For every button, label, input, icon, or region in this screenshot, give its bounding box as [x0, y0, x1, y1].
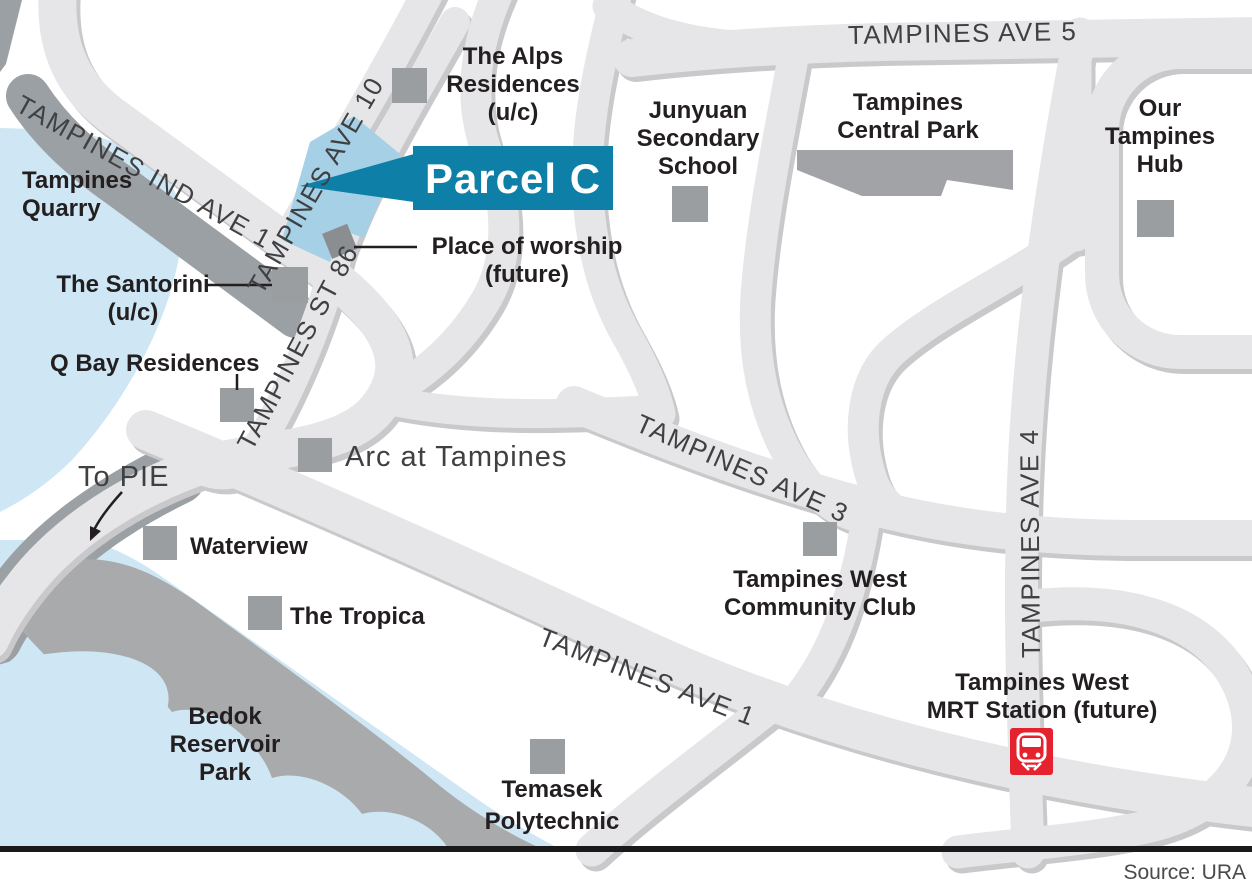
label-q-bay-residences: Q Bay Residences — [50, 350, 259, 377]
parcel-c-callout-label: Parcel C — [425, 155, 601, 202]
svg-text:(u/c): (u/c) — [488, 99, 539, 126]
marker-the-tropica — [248, 596, 282, 630]
svg-text:Central Park: Central Park — [837, 117, 979, 144]
marker-junyuan-secondary-school — [672, 186, 708, 222]
svg-text:Tampines: Tampines — [1105, 123, 1215, 150]
svg-text:Tampines: Tampines — [22, 167, 132, 194]
tampines-parcel-c-map: Parcel C TAMPINES AVE 5 TAMPINES IND AVE… — [0, 0, 1252, 886]
svg-text:Junyuan: Junyuan — [649, 97, 748, 124]
label-to-pie: To PIE — [78, 461, 169, 493]
svg-text:Place of worship: Place of worship — [432, 233, 623, 260]
svg-text:Secondary: Secondary — [637, 125, 760, 152]
road-label-tampines-ave-5: TAMPINES AVE 5 — [848, 16, 1078, 50]
svg-text:Our: Our — [1139, 95, 1182, 122]
marker-our-tampines-hub — [1137, 200, 1174, 237]
svg-text:Reservoir: Reservoir — [170, 731, 281, 758]
svg-text:Community Club: Community Club — [724, 594, 916, 621]
marker-the-alps-residences — [392, 68, 427, 103]
label-tampines-west-mrt-station: Tampines West MRT Station (future) — [927, 669, 1158, 724]
label-the-tropica: The Tropica — [290, 603, 425, 630]
marker-waterview — [143, 526, 177, 560]
svg-text:Tampines: Tampines — [853, 89, 963, 116]
label-arc-at-tampines: Arc at Tampines — [345, 441, 567, 473]
svg-text:(future): (future) — [485, 261, 569, 288]
bottom-rule — [0, 846, 1252, 852]
svg-text:Hub: Hub — [1137, 151, 1184, 178]
label-waterview: Waterview — [190, 533, 308, 560]
mrt-station-icon — [1010, 728, 1053, 775]
label-tampines-west-community-club: Tampines West Community Club — [724, 566, 916, 621]
marker-temasek-polytechnic — [530, 739, 565, 774]
svg-text:MRT Station (future): MRT Station (future) — [927, 697, 1158, 724]
svg-text:Polytechnic: Polytechnic — [485, 808, 620, 835]
svg-text:Bedok: Bedok — [188, 703, 262, 730]
svg-text:Tampines West: Tampines West — [733, 566, 907, 593]
svg-text:School: School — [658, 153, 738, 180]
svg-text:Temasek: Temasek — [502, 776, 604, 803]
source-credit: Source: URA — [1123, 861, 1246, 884]
road-label-tampines-ave-4: TAMPINES AVE 4 — [1014, 428, 1046, 658]
svg-text:The Alps: The Alps — [463, 43, 563, 70]
marker-tampines-west-community-club — [803, 522, 837, 556]
label-tampines-central-park: Tampines Central Park — [837, 89, 979, 144]
marker-arc-at-tampines — [298, 438, 332, 472]
svg-text:Park: Park — [199, 759, 252, 786]
svg-text:The Santorini: The Santorini — [56, 271, 209, 298]
svg-text:Residences: Residences — [446, 71, 579, 98]
svg-text:Quarry: Quarry — [22, 195, 101, 222]
svg-text:Tampines West: Tampines West — [955, 669, 1129, 696]
svg-text:(u/c): (u/c) — [108, 299, 159, 326]
